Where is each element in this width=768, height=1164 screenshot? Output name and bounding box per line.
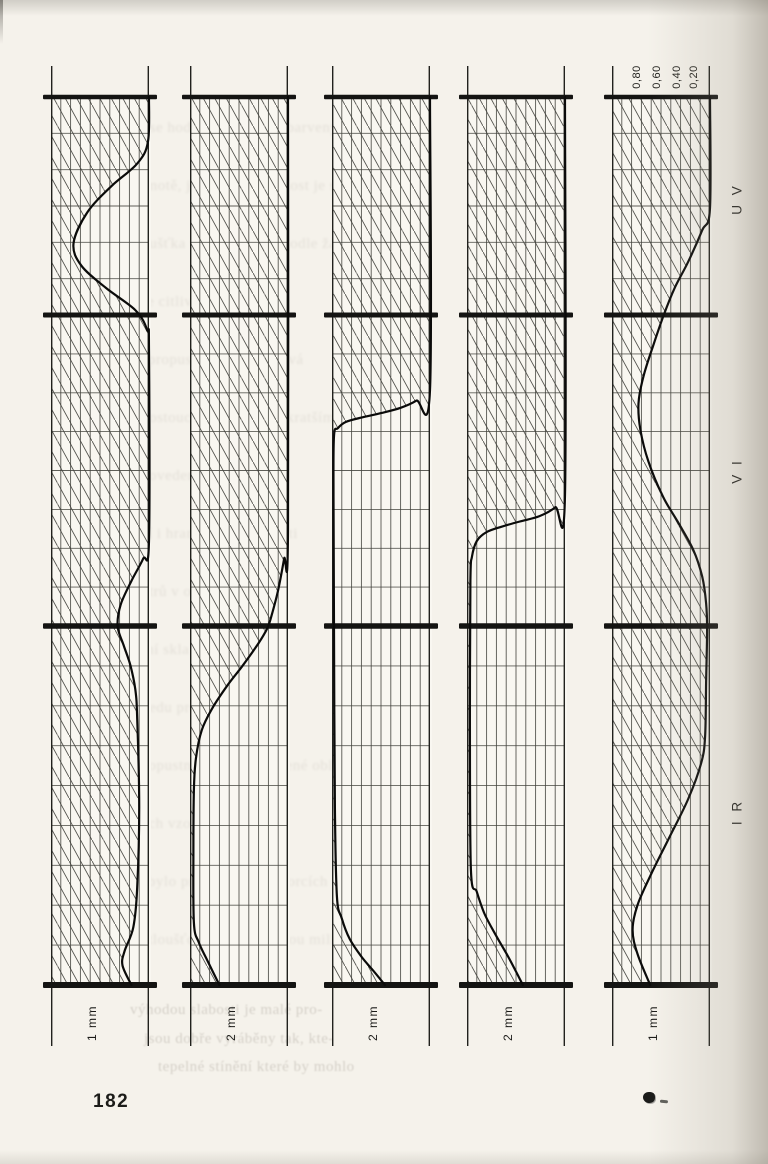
scan-edge-shading-bottom — [0, 1150, 768, 1164]
strip-3 — [324, 66, 438, 1046]
scanned-page: pro fotografii se hodí filtry ze skel ba… — [0, 0, 768, 1164]
value-axis-tick-080: 0,80 — [631, 65, 643, 88]
scan-edge-shading-right — [648, 0, 768, 1164]
thickness-label-strip1: 1 mm — [85, 1005, 99, 1041]
scan-edge-shading-left — [0, 0, 3, 44]
thickness-label-strip4: 2 mm — [501, 1005, 515, 1041]
strip-2 — [182, 66, 296, 1046]
page-number: 182 — [93, 1091, 129, 1113]
thickness-label-strip3: 2 mm — [366, 1005, 380, 1041]
strip-1 — [43, 66, 157, 1046]
thickness-label-strip2: 2 mm — [224, 1005, 238, 1041]
strip-4 — [459, 66, 573, 1046]
